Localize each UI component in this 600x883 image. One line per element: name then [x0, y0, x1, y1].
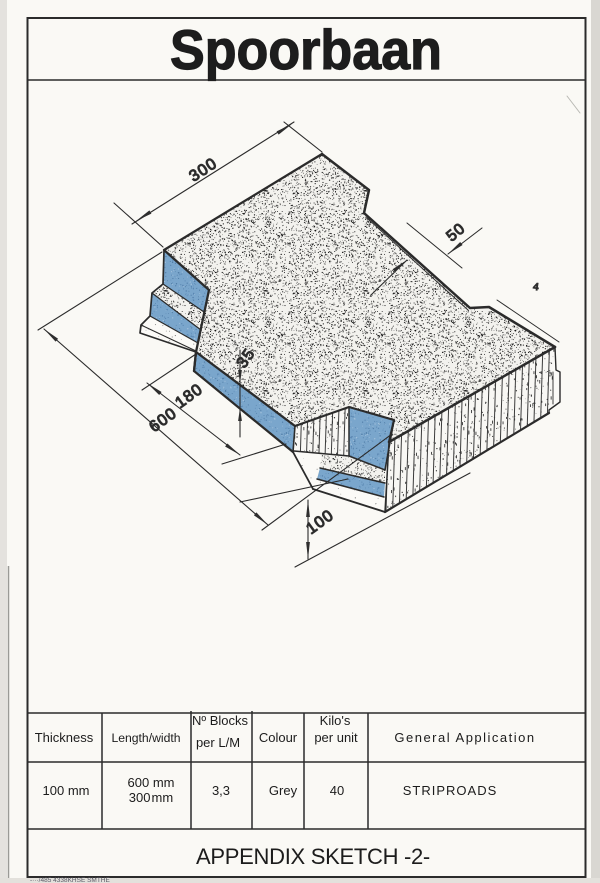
svg-text:STRIPROADS: STRIPROADS	[403, 783, 498, 798]
svg-text:Nº Blocks: Nº Blocks	[192, 713, 249, 728]
svg-text:APPENDIX SKETCH -2-: APPENDIX SKETCH -2-	[196, 844, 430, 869]
svg-text:General Application: General Application	[394, 730, 535, 745]
svg-text:-···/485 4338KHSE SMTHE: -···/485 4338KHSE SMTHE	[30, 877, 110, 883]
svg-text:Spoorbaan: Spoorbaan	[170, 19, 442, 81]
svg-text:per L/M: per L/M	[196, 735, 240, 750]
svg-text:100 mm: 100 mm	[43, 783, 90, 798]
svg-text:300 mm: 300 mm	[129, 790, 173, 805]
svg-text:per unit: per unit	[314, 730, 358, 745]
svg-text:Grey: Grey	[269, 783, 298, 798]
svg-text:40: 40	[330, 783, 344, 798]
svg-text:Kilo's: Kilo's	[320, 713, 351, 728]
svg-text:Colour: Colour	[259, 730, 298, 745]
svg-text:600 mm: 600 mm	[128, 775, 175, 790]
svg-text:3,3: 3,3	[212, 783, 230, 798]
svg-text:Thickness: Thickness	[35, 730, 94, 745]
svg-text:Length/width: Length/width	[111, 731, 180, 745]
